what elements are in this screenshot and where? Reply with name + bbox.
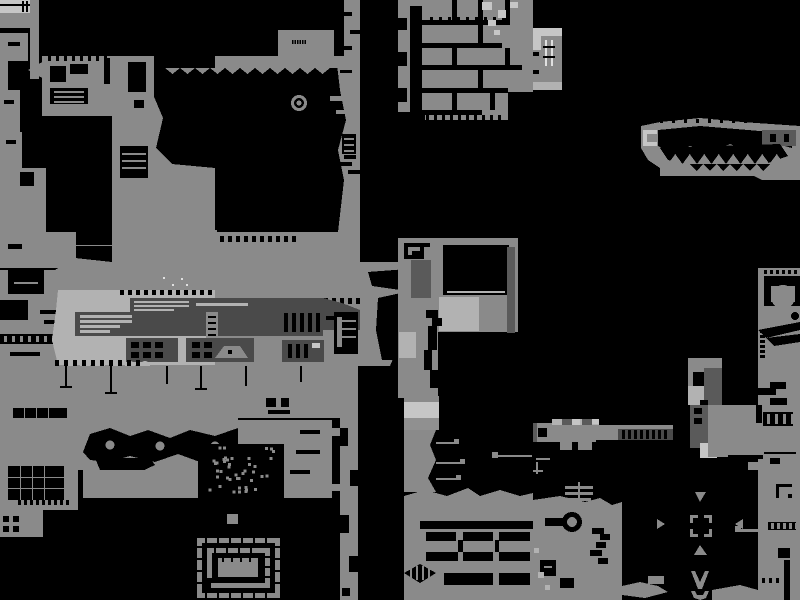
map-shape	[436, 442, 454, 444]
map-shape	[693, 372, 704, 385]
map-shape	[684, 119, 687, 123]
map-shape	[168, 204, 177, 206]
map-shape	[771, 523, 774, 529]
map-shape	[296, 344, 300, 358]
map-shape	[222, 458, 225, 461]
map-shape	[265, 566, 270, 568]
map-shape	[622, 582, 668, 598]
map-shape	[744, 119, 747, 123]
map-shape	[426, 532, 456, 541]
map-shape	[422, 43, 502, 48]
map-shape	[702, 131, 705, 141]
map-shape	[482, 2, 492, 10]
map-shape	[143, 352, 151, 358]
map-shape	[120, 290, 124, 295]
map-shape	[30, 500, 33, 505]
map-shape	[768, 119, 771, 123]
map-shape	[760, 330, 765, 333]
map-shape	[312, 343, 320, 348]
map-shape	[646, 430, 649, 439]
map-shape	[702, 138, 760, 141]
map-shape	[436, 478, 456, 480]
map-shape	[175, 498, 178, 503]
map-shape	[426, 115, 429, 120]
map-shape	[498, 10, 506, 18]
map-shape	[105, 392, 117, 394]
map-shape	[110, 366, 112, 394]
map-shape	[450, 115, 453, 120]
map-shape	[48, 56, 51, 61]
map-shape	[284, 313, 288, 332]
map-shape	[756, 119, 759, 123]
map-shape	[769, 578, 772, 583]
map-shape	[253, 593, 255, 598]
map-shape	[690, 515, 693, 523]
map-shape	[695, 492, 706, 502]
world-map[interactable]	[0, 0, 800, 600]
map-shape	[342, 328, 356, 330]
map-shape	[290, 470, 310, 474]
map-shape	[708, 405, 763, 457]
map-shape	[8, 466, 64, 500]
map-shape	[420, 247, 424, 255]
map-shape	[32, 466, 33, 500]
map-shape	[20, 336, 23, 342]
map-shape	[560, 442, 572, 450]
map-shape	[330, 96, 352, 101]
map-shape	[215, 462, 218, 465]
map-shape	[0, 90, 20, 136]
map-shape	[231, 558, 233, 562]
map-shape	[284, 236, 288, 242]
map-shape	[8, 244, 22, 249]
map-shape	[265, 447, 268, 450]
map-shape	[499, 532, 530, 541]
map-shape	[398, 52, 407, 66]
map-shape	[268, 236, 272, 242]
map-shape	[44, 466, 45, 500]
map-shape	[474, 115, 477, 120]
map-shape	[218, 485, 221, 488]
map-shape	[238, 548, 240, 553]
map-shape	[4, 100, 14, 104]
map-shape	[226, 459, 229, 462]
map-shape	[100, 360, 104, 366]
map-shape	[664, 430, 667, 439]
map-shape	[238, 490, 241, 493]
map-shape	[300, 40, 302, 44]
map-shape	[430, 370, 438, 388]
map-shape	[784, 134, 789, 142]
map-shape	[8, 477, 64, 478]
map-shape	[348, 170, 360, 174]
map-shape	[422, 566, 424, 580]
map-shape	[250, 548, 252, 553]
map-shape	[54, 101, 84, 103]
map-shape	[764, 452, 796, 454]
map-shape	[80, 330, 110, 333]
map-shape	[543, 46, 555, 48]
map-shape	[434, 115, 437, 120]
map-shape	[463, 532, 493, 541]
map-shape	[50, 66, 66, 82]
map-shape	[795, 523, 798, 529]
map-shape	[248, 463, 251, 466]
map-shape	[452, 48, 457, 65]
map-shape	[166, 366, 168, 384]
map-shape	[545, 518, 563, 526]
map-shape	[136, 196, 145, 198]
map-shape	[756, 405, 762, 423]
map-shape	[770, 382, 786, 389]
map-shape	[238, 477, 241, 480]
map-shape	[134, 100, 144, 108]
map-shape	[253, 538, 255, 543]
map-shape	[304, 344, 308, 358]
map-shape	[776, 270, 779, 274]
map-shape	[398, 88, 407, 102]
map-shape	[567, 517, 577, 527]
map-shape	[144, 290, 148, 295]
map-shape	[208, 322, 216, 324]
map-shape	[208, 290, 212, 295]
map-shape	[424, 350, 432, 370]
map-shape	[128, 62, 146, 92]
map-shape	[216, 475, 219, 478]
map-shape	[275, 558, 280, 560]
map-shape	[777, 523, 780, 529]
map-shape	[204, 352, 212, 358]
map-shape	[628, 430, 631, 439]
map-shape	[640, 430, 643, 439]
map-shape	[778, 548, 790, 558]
map-shape	[294, 484, 340, 491]
map-shape	[776, 484, 779, 498]
map-shape	[416, 566, 418, 580]
map-shape	[130, 498, 133, 503]
map-shape	[192, 342, 200, 348]
map-shape	[422, 20, 510, 25]
map-shape	[200, 290, 204, 295]
map-shape	[488, 20, 496, 26]
map-shape	[454, 439, 459, 444]
map-shape	[226, 548, 228, 553]
map-shape	[478, 70, 483, 88]
map-shape	[622, 430, 625, 439]
map-shape	[109, 360, 113, 366]
map-shape	[783, 414, 786, 424]
map-shape	[436, 462, 460, 464]
map-shape	[350, 30, 360, 34]
map-shape	[349, 556, 358, 572]
map-shape	[466, 17, 469, 20]
map-shape	[112, 498, 115, 503]
map-shape	[760, 355, 765, 358]
map-shape	[300, 366, 302, 382]
map-shape	[660, 119, 663, 123]
map-shape	[160, 290, 164, 295]
map-shape	[134, 309, 174, 311]
map-shape	[72, 56, 75, 61]
map-shape	[460, 459, 465, 464]
map-shape	[234, 473, 237, 476]
map-shape	[404, 430, 436, 492]
map-shape	[712, 585, 758, 600]
map-shape	[14, 282, 38, 284]
map-shape	[134, 305, 189, 307]
map-shape	[578, 442, 592, 450]
map-shape	[152, 218, 154, 228]
map-shape	[172, 284, 174, 286]
map-shape	[466, 115, 469, 120]
map-shape	[592, 528, 604, 534]
map-shape	[292, 40, 294, 44]
map-shape	[254, 488, 257, 491]
map-shape	[54, 500, 57, 505]
map-shape	[292, 236, 296, 242]
map-shape	[399, 332, 416, 358]
map-shape	[348, 298, 352, 304]
map-shape	[20, 172, 34, 186]
map-shape	[430, 17, 433, 20]
map-shape	[205, 593, 207, 598]
map-shape	[134, 301, 189, 303]
map-shape	[292, 313, 296, 332]
map-shape	[696, 119, 699, 123]
map-shape	[275, 582, 280, 584]
map-shape	[192, 352, 200, 358]
map-shape	[64, 56, 67, 61]
map-shape	[510, 2, 518, 8]
map-shape	[760, 340, 765, 343]
map-shape	[762, 578, 765, 583]
map-shape	[533, 28, 541, 50]
map-shape	[36, 336, 39, 342]
map-shape	[48, 500, 51, 505]
map-shape	[24, 500, 27, 505]
map-shape	[592, 419, 599, 424]
map-shape	[56, 56, 59, 61]
map-shape	[297, 40, 299, 44]
map-shape	[296, 450, 320, 454]
map-shape	[490, 115, 493, 120]
map-shape	[788, 270, 791, 274]
map-shape	[248, 457, 251, 460]
map-shape	[590, 550, 602, 556]
map-shape	[204, 342, 212, 348]
map-shape	[448, 17, 451, 20]
map-shape	[758, 388, 776, 395]
map-shape	[443, 245, 509, 295]
map-shape	[275, 546, 280, 548]
map-shape	[533, 52, 539, 56]
map-shape	[186, 338, 254, 362]
map-shape	[490, 93, 495, 110]
map-shape	[195, 388, 207, 390]
map-shape	[320, 428, 342, 436]
map-shape	[185, 213, 187, 225]
map-shape	[197, 570, 202, 572]
map-shape	[342, 320, 356, 322]
map-shape	[758, 405, 800, 600]
map-shape	[572, 419, 580, 425]
map-shape	[428, 568, 430, 578]
map-shape	[791, 312, 799, 320]
map-shape	[344, 138, 354, 140]
map-shape	[236, 236, 240, 242]
map-shape	[168, 290, 172, 295]
map-shape	[60, 386, 72, 388]
map-shape	[122, 160, 146, 162]
map-shape	[704, 534, 712, 537]
map-shape	[428, 326, 437, 350]
map-shape	[783, 523, 786, 529]
map-shape	[140, 196, 141, 238]
map-shape	[214, 548, 216, 553]
map-shape	[534, 548, 539, 553]
map-shape	[197, 582, 202, 584]
map-shape	[533, 70, 539, 74]
map-shape	[197, 558, 202, 560]
map-shape	[155, 342, 163, 348]
map-shape	[316, 313, 320, 332]
map-shape	[28, 336, 31, 342]
map-shape	[244, 470, 247, 473]
map-shape	[245, 366, 247, 386]
map-shape	[757, 131, 760, 141]
map-shape	[228, 350, 232, 354]
map-shape	[770, 398, 787, 406]
map-shape	[265, 593, 267, 598]
map-shape	[784, 560, 790, 600]
map-shape	[342, 588, 350, 596]
map-shape	[245, 486, 248, 489]
map-shape	[184, 498, 187, 503]
map-shape	[226, 477, 229, 480]
map-shape	[288, 344, 292, 358]
map-shape	[157, 498, 160, 503]
map-shape	[305, 40, 307, 44]
map-shape	[156, 442, 165, 451]
map-shape	[356, 298, 360, 304]
map-shape	[208, 316, 216, 318]
map-shape	[212, 459, 215, 462]
map-shape	[762, 130, 796, 146]
map-shape	[83, 470, 198, 498]
map-shape	[456, 475, 461, 480]
map-shape	[186, 284, 188, 286]
map-shape	[121, 498, 124, 503]
map-shape	[498, 455, 532, 457]
map-shape	[782, 270, 785, 274]
map-shape	[420, 521, 533, 529]
map-shape	[344, 46, 352, 50]
map-shape	[708, 119, 711, 123]
map-shape	[694, 545, 707, 555]
map-shape	[22, 1, 24, 12]
map-shape	[340, 162, 352, 166]
map-shape	[788, 494, 792, 498]
map-shape	[494, 30, 500, 35]
map-shape	[218, 447, 221, 450]
map-shape	[302, 40, 304, 44]
map-shape	[200, 366, 202, 390]
map-shape	[181, 278, 183, 280]
map-shape	[240, 558, 242, 562]
map-shape	[340, 428, 348, 446]
map-shape	[245, 490, 248, 493]
map-shape	[12, 336, 15, 342]
map-shape	[404, 418, 439, 430]
map-shape	[217, 538, 219, 543]
map-shape	[350, 470, 358, 486]
map-shape	[82, 360, 86, 366]
map-shape	[231, 457, 234, 460]
map-shape	[484, 17, 487, 20]
map-shape	[452, 0, 457, 20]
map-shape	[442, 115, 445, 120]
map-shape	[505, 48, 510, 65]
map-shape	[544, 566, 552, 568]
map-shape	[238, 487, 241, 490]
map-shape	[265, 474, 268, 477]
map-shape	[0, 510, 43, 537]
map-shape	[767, 414, 770, 424]
map-shape	[344, 155, 356, 159]
map-shape	[10, 352, 40, 356]
map-shape	[720, 119, 723, 123]
map-shape	[398, 18, 407, 30]
map-shape	[210, 192, 211, 236]
map-shape	[13, 526, 19, 532]
map-shape	[775, 414, 778, 424]
map-shape	[70, 64, 88, 74]
map-shape	[760, 335, 765, 338]
map-shape	[447, 291, 505, 293]
map-shape	[197, 593, 280, 598]
map-shape	[65, 366, 67, 388]
map-shape	[770, 134, 776, 142]
map-shape	[422, 110, 482, 115]
map-shape	[222, 558, 224, 562]
map-shape	[122, 167, 146, 169]
map-shape	[344, 12, 352, 16]
map-shape	[228, 463, 231, 466]
map-shape	[250, 479, 253, 482]
map-shape	[538, 428, 547, 437]
map-shape	[152, 290, 156, 295]
map-shape	[600, 534, 610, 540]
map-shape	[344, 144, 354, 146]
map-shape	[794, 270, 797, 274]
map-shape	[176, 290, 180, 295]
map-shape	[268, 410, 290, 414]
map-shape	[18, 500, 21, 505]
map-shape	[690, 534, 698, 537]
map-shape	[60, 500, 63, 505]
map-shape	[634, 430, 637, 439]
map-shape	[80, 56, 83, 61]
map-shape	[241, 538, 243, 543]
map-shape	[458, 115, 461, 120]
map-shape	[533, 496, 622, 600]
map-shape	[42, 500, 45, 505]
map-shape	[270, 448, 273, 451]
map-shape	[336, 110, 354, 114]
map-shape	[498, 115, 501, 120]
map-shape	[122, 153, 146, 155]
map-shape	[340, 70, 352, 73]
